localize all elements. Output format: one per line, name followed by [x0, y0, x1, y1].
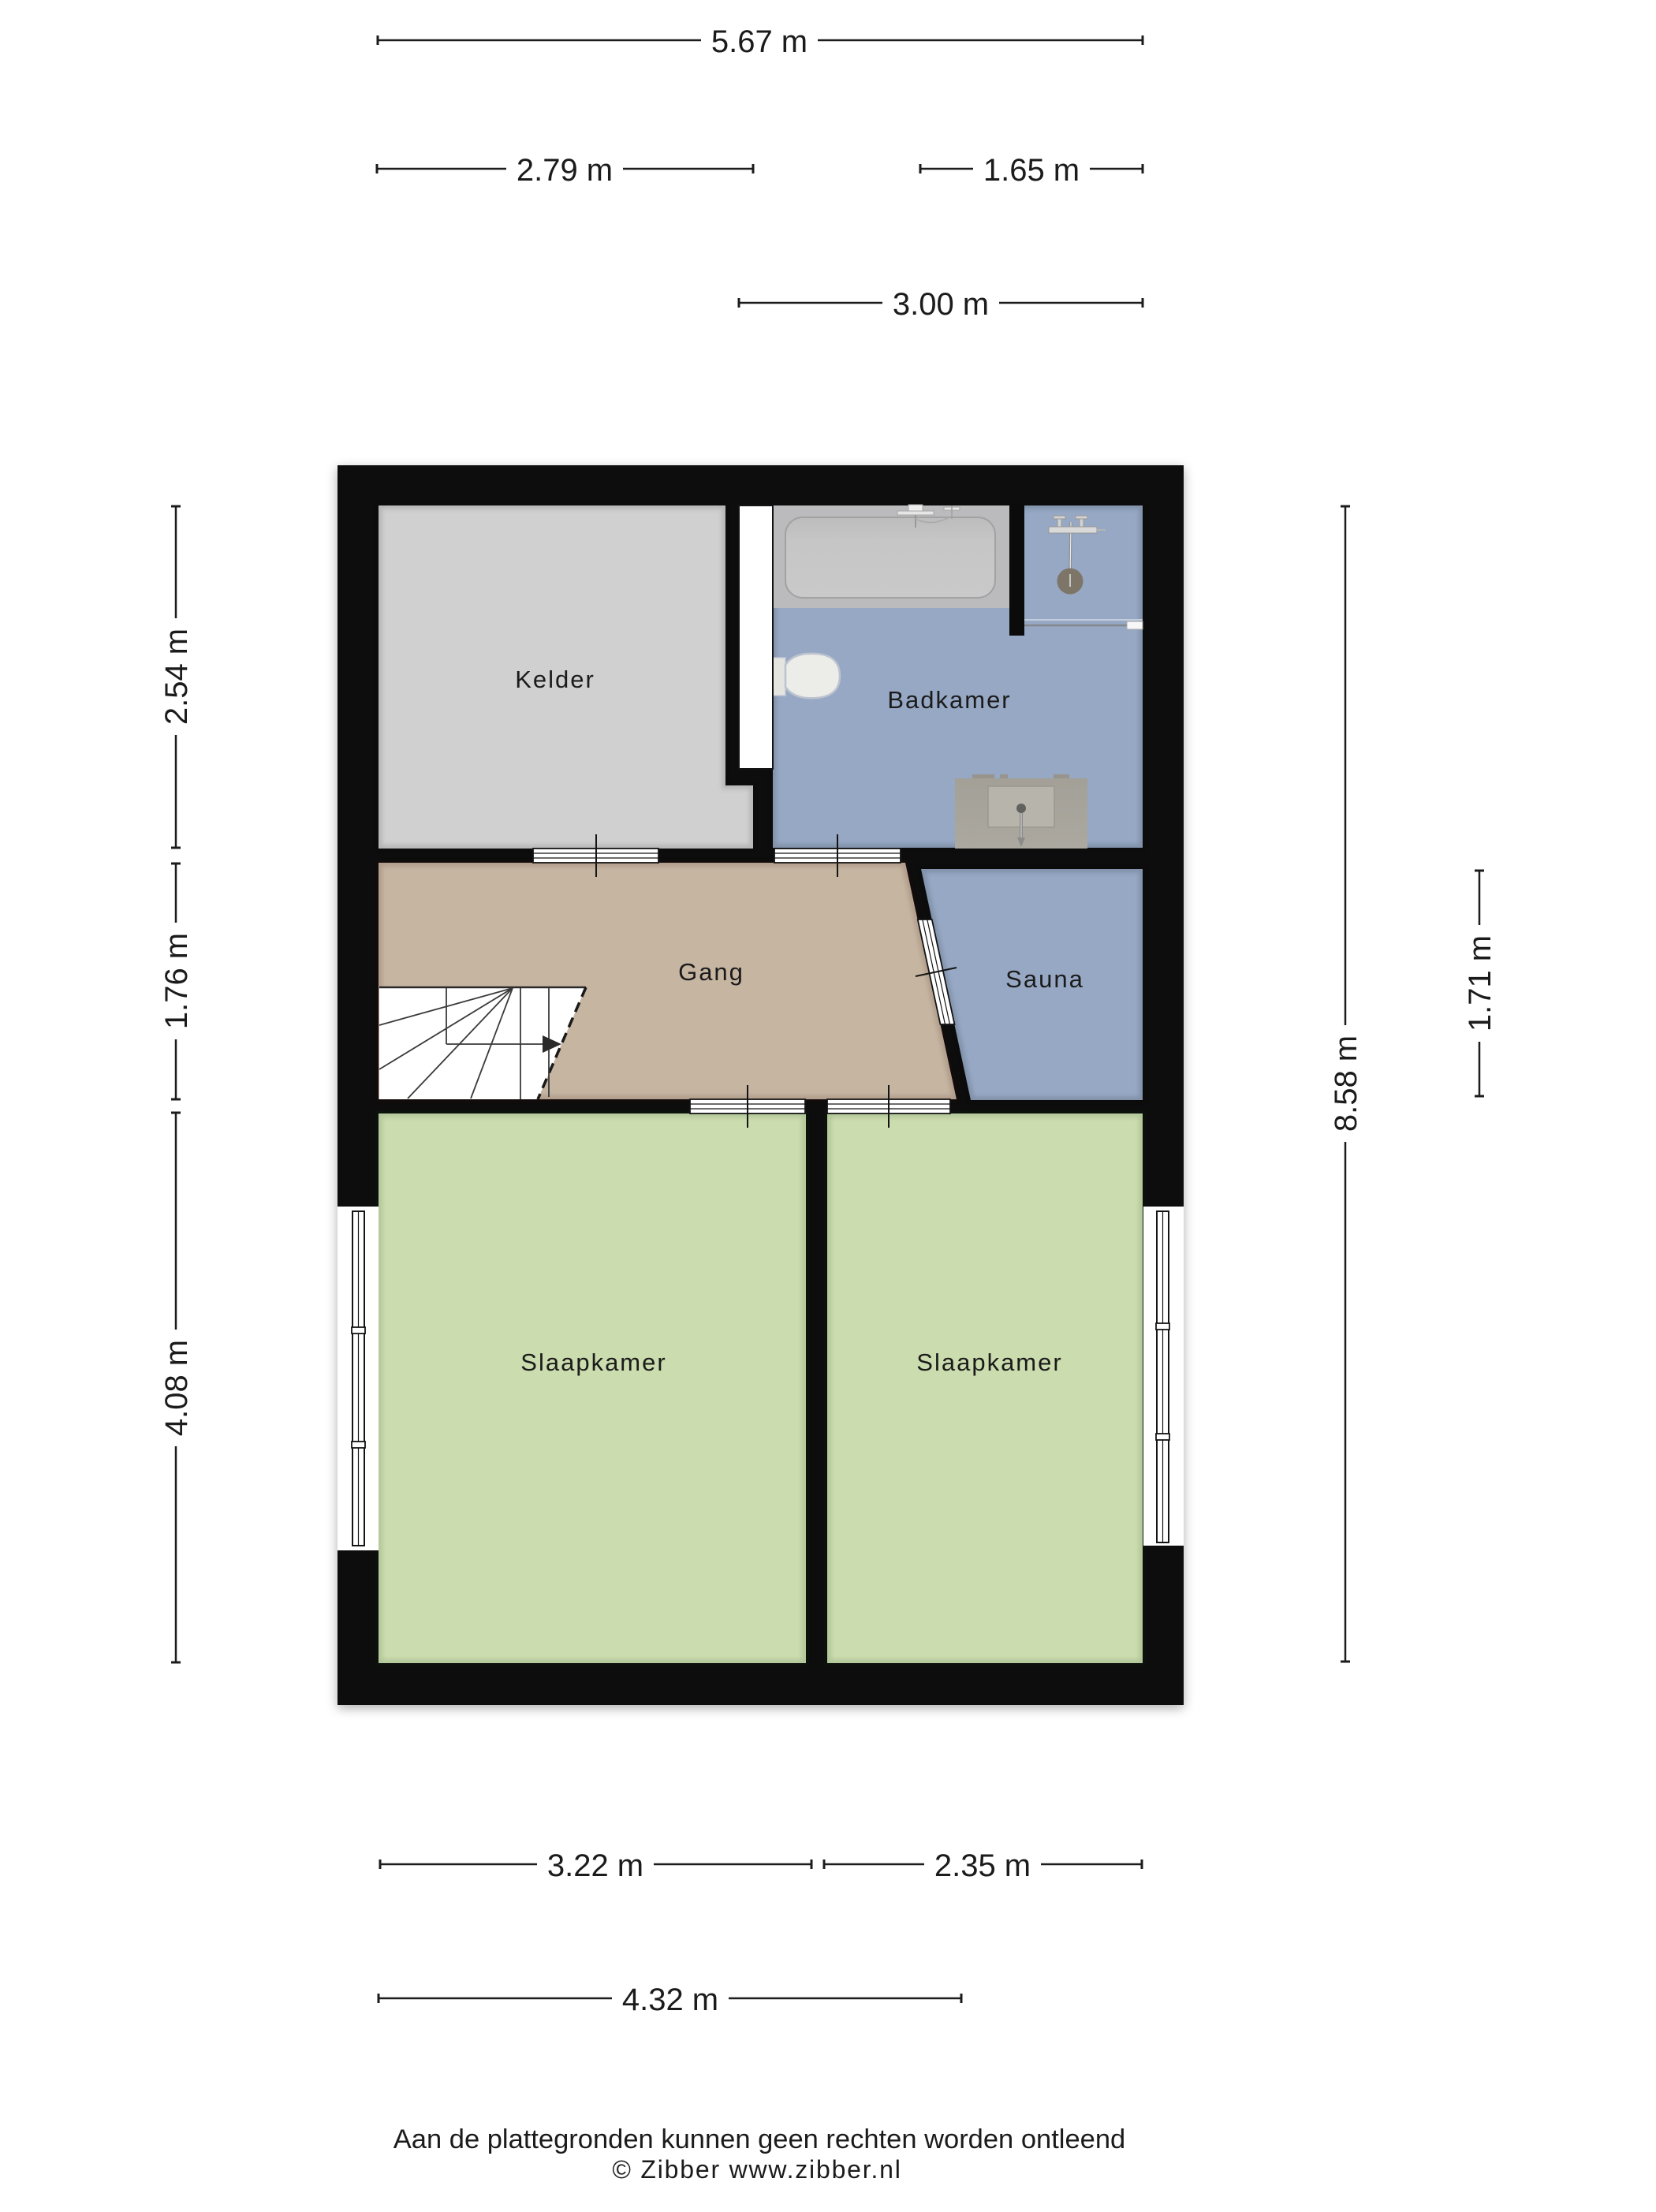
- svg-text:© Zibber www.zibber.nl: © Zibber www.zibber.nl: [612, 2155, 901, 2184]
- svg-text:1.65 m: 1.65 m: [983, 153, 1080, 188]
- svg-text:Kelder: Kelder: [515, 666, 595, 693]
- svg-text:3.00 m: 3.00 m: [893, 287, 989, 322]
- svg-text:Slaapkamer: Slaapkamer: [520, 1348, 666, 1376]
- svg-text:Aan de plattegronden kunnen ge: Aan de plattegronden kunnen geen rechten…: [393, 2124, 1125, 2154]
- svg-text:4.08 m: 4.08 m: [159, 1340, 194, 1436]
- svg-text:1.76 m: 1.76 m: [159, 933, 194, 1029]
- svg-text:2.54 m: 2.54 m: [159, 629, 194, 725]
- svg-text:2.35 m: 2.35 m: [934, 1848, 1031, 1883]
- svg-text:1.71 m: 1.71 m: [1463, 935, 1497, 1031]
- svg-text:4.32 m: 4.32 m: [622, 1983, 718, 2017]
- svg-text:2.79 m: 2.79 m: [517, 153, 613, 188]
- svg-text:8.58 m: 8.58 m: [1329, 1035, 1363, 1132]
- svg-text:3.22 m: 3.22 m: [547, 1848, 643, 1883]
- svg-text:5.67 m: 5.67 m: [711, 24, 807, 59]
- svg-text:Slaapkamer: Slaapkamer: [916, 1348, 1062, 1376]
- svg-text:Sauna: Sauna: [1005, 965, 1084, 993]
- svg-text:Gang: Gang: [678, 958, 744, 986]
- svg-text:Badkamer: Badkamer: [887, 686, 1011, 714]
